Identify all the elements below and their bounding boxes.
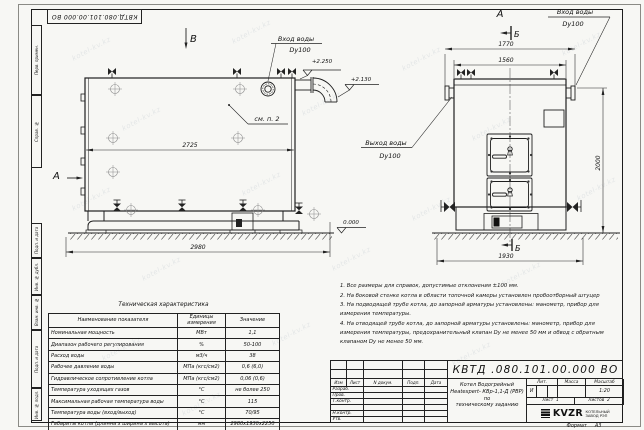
air-valve-icon: [550, 69, 558, 79]
row-approved: Утв.: [331, 417, 364, 423]
dim-2000: 2000: [595, 155, 602, 170]
dim-1770: 1770: [498, 41, 513, 48]
row-units: %: [178, 339, 226, 350]
note-2: 2. На боковой стенке котла в области топ…: [340, 292, 621, 301]
inlet-flange: [566, 86, 575, 100]
row-value: 2980х1930х2250: [226, 419, 280, 430]
row-units: °С: [178, 407, 226, 418]
kvzr-logo-subtitle: КОТЕЛЬНЫЙ ЗАВОД РЭП: [585, 410, 609, 418]
table-row: Диапазон рабочего регулирования%50-100: [49, 339, 280, 350]
title-block-right: Лит. Масса Масштаб И 1:20 Лист 1 Листов …: [526, 379, 623, 423]
front-outlet-dn: Dy100: [379, 152, 400, 160]
row-value: 0,6 (6,0): [226, 362, 280, 373]
format-strip: Формат А3: [546, 423, 622, 429]
front-view-annotations: А Б 1770 1560 2000: [361, 8, 610, 265]
table-row: Максимальная рабочая температура воды°С1…: [49, 396, 280, 407]
lit-header: Лит.: [527, 379, 558, 386]
row-name: Максимальная рабочая температура воды: [49, 396, 178, 407]
table-row: Гидравлическое сопротивление котлаМПа (к…: [49, 373, 280, 384]
air-valve-icon: [277, 68, 285, 78]
scale-header: Масштаб: [586, 379, 624, 386]
base-skid: [86, 211, 302, 233]
inlet-flange: [261, 82, 275, 96]
front-outlet-label: Выход воды: [365, 139, 406, 147]
section-label-b-top: Б: [514, 30, 520, 39]
row-name: Температура воды (вход/выход): [49, 407, 178, 418]
kvzr-logo-text: KVZR: [553, 408, 583, 419]
elev-0000: 0.000: [343, 220, 359, 226]
tech-table: Наименование показателя Единицы измерени…: [48, 313, 280, 430]
upper-door: [487, 134, 532, 176]
air-valve-icon: [288, 68, 296, 78]
section-label-b-bottom: Б: [515, 244, 521, 253]
side-view-annotations: 2725 2980 В А Вход воды Dy100 см. п. 2: [52, 28, 379, 257]
front-inlet-label: Вход воды: [557, 8, 593, 16]
product-name: Котел Водогрейный Heatexpert- КВр-1,1-Д …: [448, 379, 526, 423]
row-units: МПа (кгс/см2): [178, 373, 226, 384]
drawing-sheet: kotel-kv.kz kotel-kv.kz kotel-kv.kz kote…: [0, 0, 644, 430]
table-row: Номинальная мощностьМВт1,1: [49, 328, 280, 339]
format-label: Формат: [567, 423, 587, 429]
view-label-b: В: [190, 34, 197, 45]
row-name: Габариты котла (длинна х ширина х высота…: [49, 419, 178, 430]
row-units: м3/ч: [178, 350, 226, 361]
row-name: Температура уходящих газов: [49, 384, 178, 395]
air-valve-icon: [233, 68, 241, 78]
table-row: Температура уходящих газов°Сне более 250: [49, 384, 280, 395]
row-name: Рабочее давление воды: [49, 362, 178, 373]
document-number: КВТД .080.101.00.000 ВО: [448, 361, 623, 379]
table-row: Расход водым3/ч38: [49, 350, 280, 361]
sheets-label: Листов: [588, 398, 604, 403]
sheets-value: 2: [607, 398, 610, 403]
kvzr-logo-icon: [541, 409, 550, 418]
front-inlet-dn: Dy100: [562, 20, 583, 28]
air-valve-icon: [467, 69, 475, 79]
see-note-ref: см. п. 2: [254, 115, 279, 123]
row-name: Диапазон рабочего регулирования: [49, 339, 178, 350]
lit-value: И: [527, 386, 537, 398]
ground-hatch: [70, 234, 332, 240]
note-4: 4. На отводящей трубе котла, до запорной…: [340, 320, 621, 347]
row-value: 115: [226, 396, 280, 407]
table-row: Рабочее давление водыМПа (кгс/см2)0,6 (6…: [49, 362, 280, 373]
col-sign: Подп.: [403, 379, 425, 387]
row-value: 50-100: [226, 339, 280, 350]
dim-2725: 2725: [182, 142, 197, 149]
elev-2250: +2.250: [312, 59, 333, 65]
view-label-a-top: А: [496, 9, 504, 20]
col-doc: N докум.: [364, 379, 403, 387]
row-name: Гидравлическое сопротивление котла: [49, 373, 178, 384]
scale-value: 1:20: [586, 386, 624, 398]
col-list: Лист: [347, 379, 364, 387]
table-row: Габариты котла (длинна х ширина х высота…: [49, 419, 280, 430]
table-row: Температура воды (вход/выход)°С70/95: [49, 407, 280, 418]
col-header-value: Значение: [226, 314, 280, 328]
drain-valve-icon: [113, 200, 121, 211]
dim-2980: 2980: [190, 244, 205, 251]
dim-1930: 1930: [498, 253, 513, 260]
air-valve-icon: [457, 69, 465, 79]
tech-table-header: Наименование показателя Единицы измерени…: [49, 314, 280, 328]
side-valve-right: [566, 200, 581, 212]
view-label-a: А: [52, 171, 60, 182]
row-units: °С: [178, 396, 226, 407]
manufacturer-logo: KVZR КОТЕЛЬНЫЙ ЗАВОД РЭП: [527, 405, 624, 424]
notes-block: 1. Все размеры для справок, допустимые о…: [340, 282, 621, 348]
ground-hatch: [434, 234, 618, 240]
drain-valve-icon: [239, 200, 247, 211]
row-name: Расход воды: [49, 350, 178, 361]
door-handle: [493, 155, 507, 158]
tech-table-title: Техническая характеристика: [48, 302, 279, 308]
row-value: 0,06 (0,6): [226, 373, 280, 384]
note-1: 1. Все размеры для справок, допустимые о…: [340, 282, 621, 291]
mass-header: Масса: [558, 379, 586, 386]
dim-1560: 1560: [498, 57, 513, 64]
door-handle: [493, 193, 507, 196]
air-valve-icon: [108, 68, 116, 78]
col-izm: Изм: [331, 379, 347, 387]
row-units: МВт: [178, 328, 226, 339]
flue-elbow: [295, 77, 337, 102]
row-units: МПа (кгс/см2): [178, 362, 226, 373]
drain-valve-icon: [178, 200, 186, 211]
row-value: не более 250: [226, 384, 280, 395]
side-inlet-dn: Dy100: [289, 46, 310, 54]
col-header-units: Единицы измерения: [178, 314, 226, 328]
row-value: 70/95: [226, 407, 280, 418]
product-name-line2: Heatexpert- КВр-1,1-Д (РВР) по: [448, 389, 526, 403]
product-name-line3: техническому заданию: [448, 402, 526, 409]
note-3: 3. На подводящей трубе котла, до запорно…: [340, 301, 621, 319]
front-view: [432, 68, 620, 243]
col-date: Дата: [425, 379, 448, 387]
outlet-flange: [445, 86, 454, 100]
side-view: [68, 68, 337, 240]
product-name-line1: Котел Водогрейный: [448, 382, 526, 389]
control-box: [544, 110, 564, 127]
col-header-name: Наименование показателя: [49, 314, 178, 328]
logo-subtitle-line2: ЗАВОД РЭП: [585, 414, 609, 418]
title-block-revision-grid: Изм Лист N докум. Подп. Дата Разраб. Про…: [331, 361, 448, 423]
lower-door: [487, 178, 532, 211]
sheet-label: Лист: [542, 398, 553, 403]
side-inlet-label: Вход воды: [278, 35, 314, 43]
row-value: 1,1: [226, 328, 280, 339]
pedestal: [456, 207, 566, 230]
title-block: Изм Лист N докум. Подп. Дата Разраб. Про…: [330, 360, 622, 422]
drain-valve-icon: [295, 203, 303, 214]
row-units: мм: [178, 419, 226, 430]
row-units: °С: [178, 384, 226, 395]
row-value: 38: [226, 350, 280, 361]
format-value: А3: [595, 423, 602, 429]
elev-2130: +2.130: [351, 77, 372, 83]
row-name: Номинальная мощность: [49, 328, 178, 339]
sheet-value: 1: [556, 398, 559, 403]
